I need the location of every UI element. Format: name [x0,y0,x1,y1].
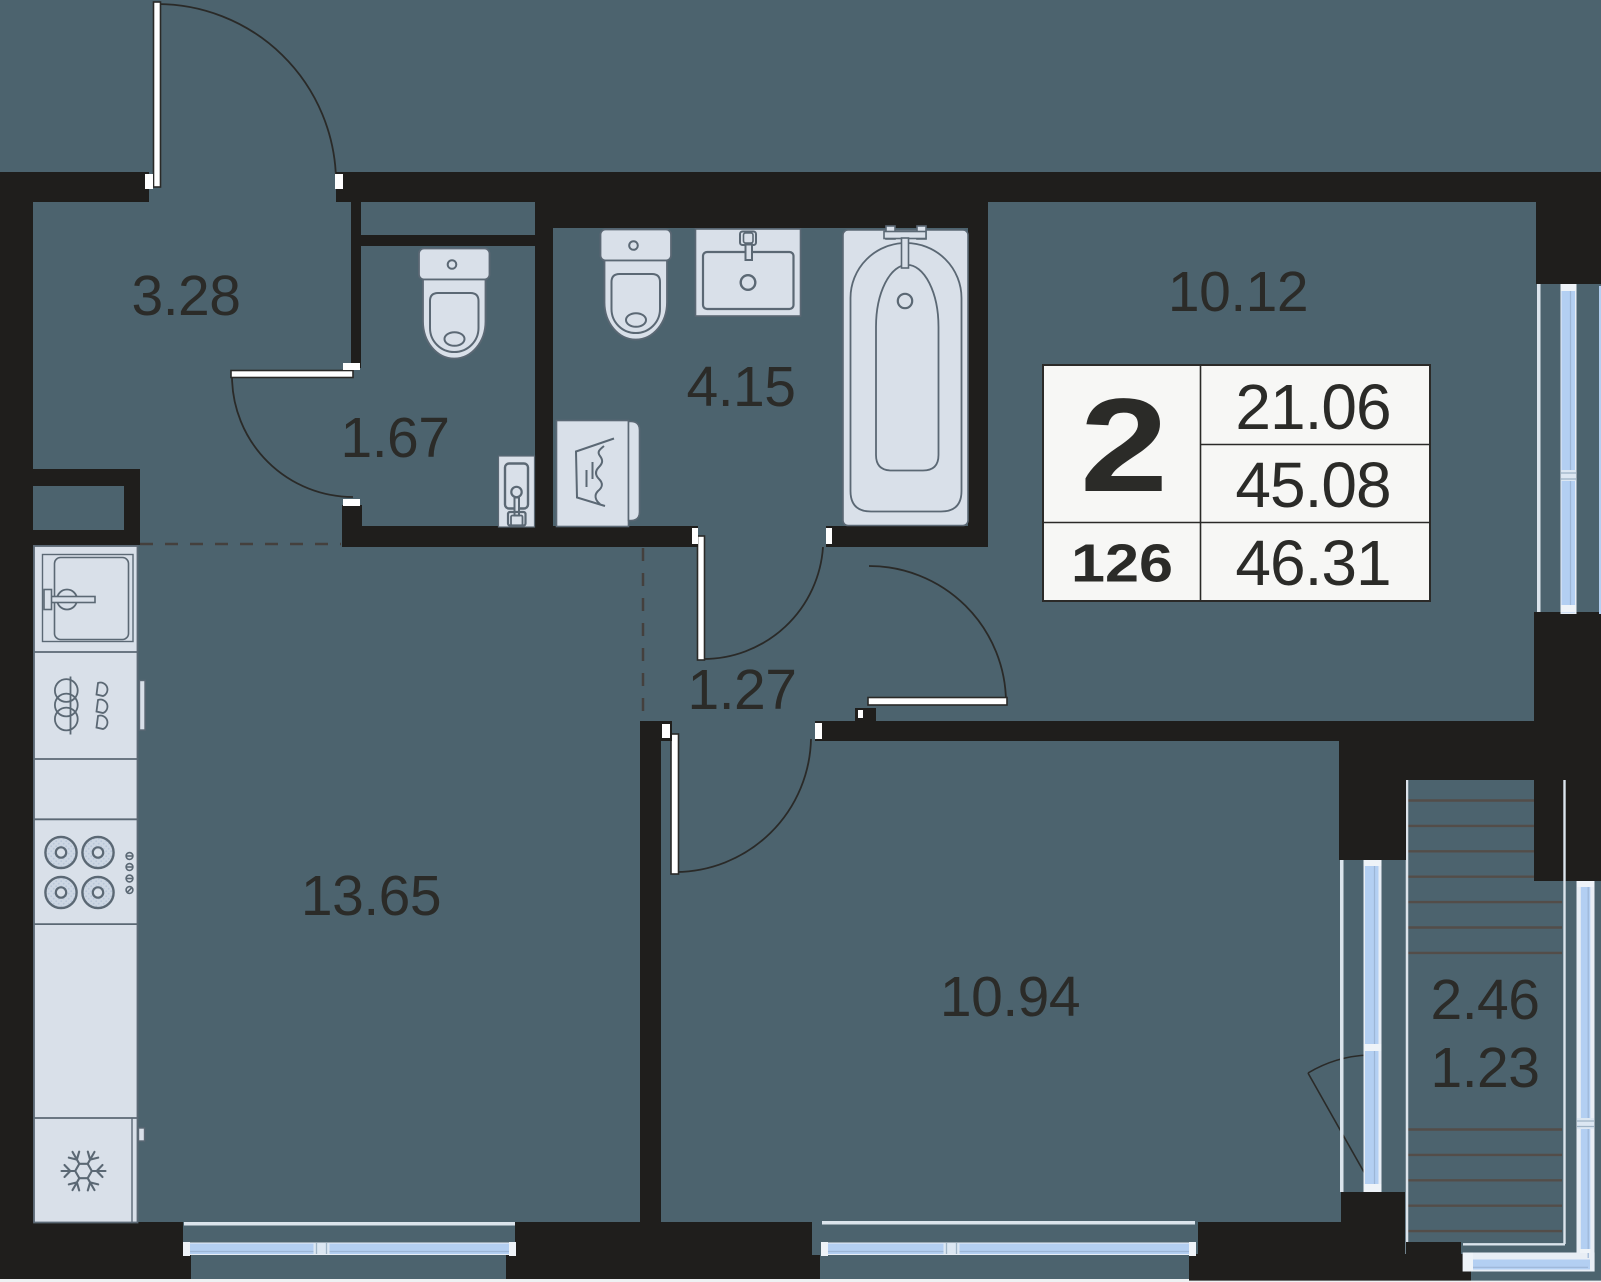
svg-text:46.31: 46.31 [1235,527,1390,599]
svg-text:21.06: 21.06 [1235,371,1390,443]
svg-text:2: 2 [1080,372,1168,520]
svg-text:2.46: 2.46 [1431,968,1540,1032]
svg-text:10.12: 10.12 [1168,260,1308,324]
svg-text:3.28: 3.28 [132,264,241,328]
svg-text:13.65: 13.65 [301,864,441,928]
svg-text:4.15: 4.15 [687,355,796,419]
svg-text:45.08: 45.08 [1235,449,1390,521]
svg-text:126: 126 [1071,534,1173,594]
svg-text:1.27: 1.27 [688,658,797,722]
svg-text:10.94: 10.94 [940,965,1080,1029]
svg-text:1.23: 1.23 [1431,1036,1540,1100]
svg-text:1.67: 1.67 [341,406,450,470]
